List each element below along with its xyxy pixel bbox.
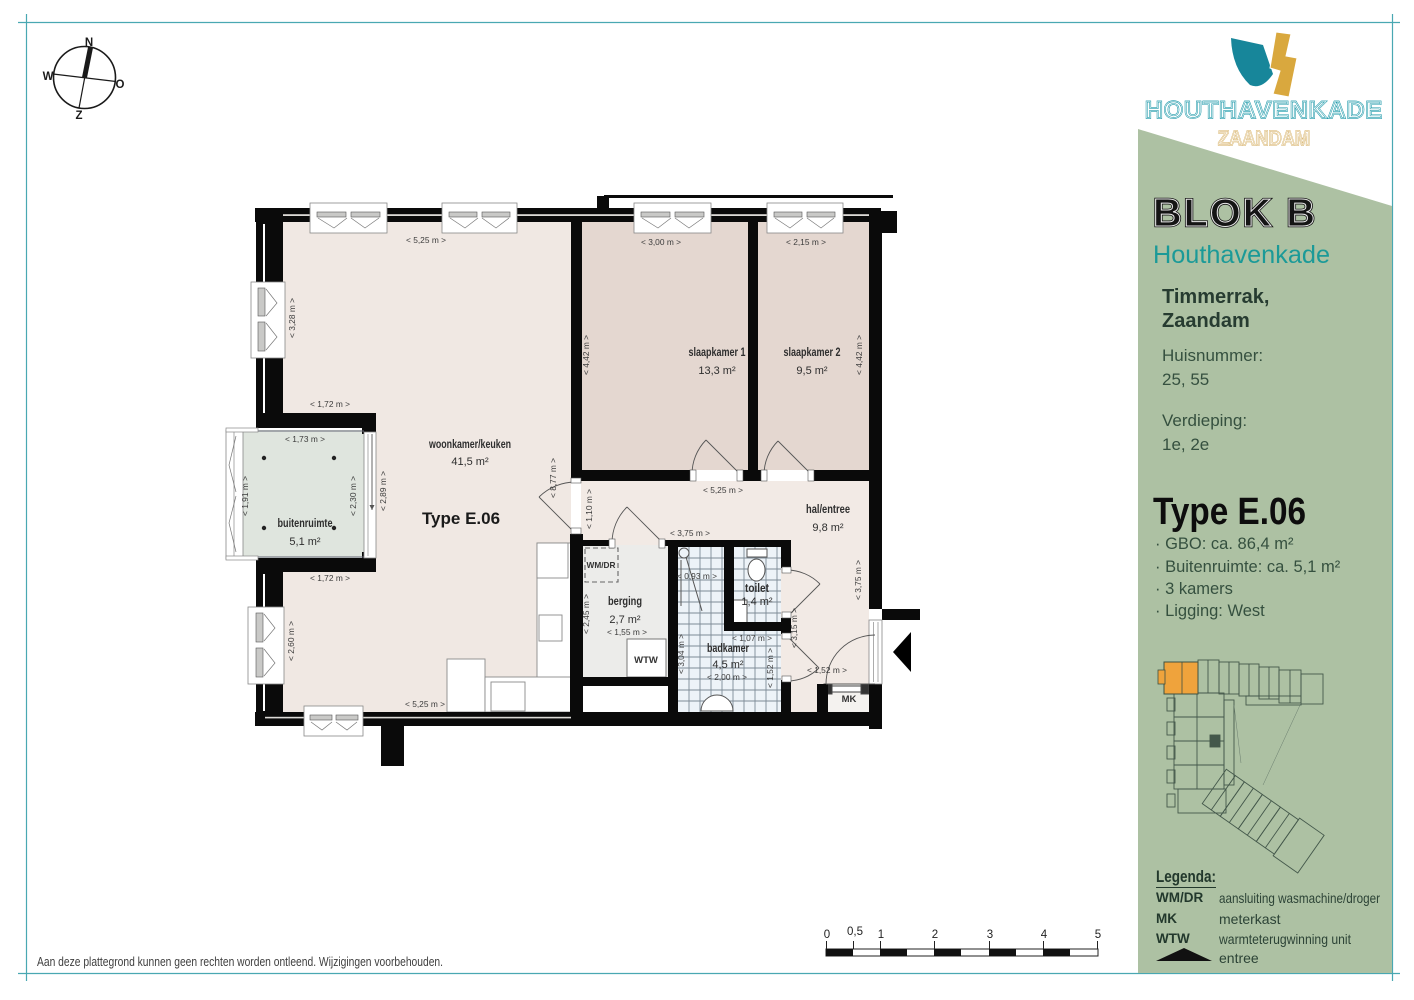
svg-text:25, 55: 25, 55 xyxy=(1162,370,1209,389)
svg-text:< 2,45 m >: < 2,45 m > xyxy=(581,594,591,634)
svg-text:WTW: WTW xyxy=(634,655,658,666)
svg-text:Type E.06: Type E.06 xyxy=(1153,491,1306,533)
svg-text:9,5 m²: 9,5 m² xyxy=(796,365,828,377)
svg-text:· Buitenruimte: ca. 5,1 m²: · Buitenruimte: ca. 5,1 m² xyxy=(1155,558,1341,576)
svg-text:< 2,30 m >: < 2,30 m > xyxy=(348,476,358,516)
svg-text:Houthavenkade: Houthavenkade xyxy=(1153,241,1330,269)
svg-text:< 3,75 m >: < 3,75 m > xyxy=(670,528,710,538)
svg-text:· Ligging: West: · Ligging: West xyxy=(1155,602,1265,620)
svg-text:berging: berging xyxy=(608,596,642,608)
svg-text:3: 3 xyxy=(987,929,993,941)
svg-text:5: 5 xyxy=(1095,929,1101,941)
svg-text:9,8 m²: 9,8 m² xyxy=(812,522,844,534)
svg-text:< 1,72 m >: < 1,72 m > xyxy=(310,573,350,583)
svg-text:0,5: 0,5 xyxy=(847,926,863,938)
svg-text:< 3,00 m >: < 3,00 m > xyxy=(641,237,681,247)
svg-text:· 3 kamers: · 3 kamers xyxy=(1155,580,1233,598)
svg-text:entree: entree xyxy=(1219,950,1259,966)
svg-text:Aan deze plattegrond kunnen ge: Aan deze plattegrond kunnen geen rechten… xyxy=(37,955,443,969)
svg-text:Type E.06: Type E.06 xyxy=(422,509,500,528)
svg-text:4,5 m²: 4,5 m² xyxy=(712,659,744,671)
svg-text:41,5 m²: 41,5 m² xyxy=(451,456,489,468)
svg-text:< 0,93 m >: < 0,93 m > xyxy=(677,571,717,581)
svg-text:O: O xyxy=(116,79,125,91)
svg-text:0: 0 xyxy=(824,929,830,941)
svg-text:ZAANDAM: ZAANDAM xyxy=(1218,128,1310,150)
svg-text:< 2,00 m >: < 2,00 m > xyxy=(707,672,747,682)
svg-text:< 8,77 m >: < 8,77 m > xyxy=(548,458,558,498)
svg-text:BLOK B: BLOK B xyxy=(1153,192,1317,235)
svg-text:< 1,55 m >: < 1,55 m > xyxy=(607,627,647,637)
svg-text:< 5,25 m >: < 5,25 m > xyxy=(405,699,445,709)
svg-text:4: 4 xyxy=(1041,929,1048,941)
svg-text:warmteterugwinning unit: warmteterugwinning unit xyxy=(1218,931,1351,947)
svg-text:< 2,15 m >: < 2,15 m > xyxy=(786,237,826,247)
svg-text:< 4,42 m >: < 4,42 m > xyxy=(854,335,864,375)
svg-text:2,7 m²: 2,7 m² xyxy=(609,614,641,626)
svg-text:WTW: WTW xyxy=(1156,931,1190,946)
svg-text:< 2,60 m >: < 2,60 m > xyxy=(286,621,296,661)
svg-text:< 1,72 m >: < 1,72 m > xyxy=(310,399,350,409)
svg-text:< 1,10 m >: < 1,10 m > xyxy=(584,489,594,529)
svg-text:slaapkamer 1: slaapkamer 1 xyxy=(689,347,746,359)
svg-text:1: 1 xyxy=(878,929,884,941)
svg-text:MK: MK xyxy=(842,694,857,705)
svg-text:Zaandam: Zaandam xyxy=(1162,310,1250,332)
svg-text:Huisnummer:: Huisnummer: xyxy=(1162,346,1263,365)
svg-text:W: W xyxy=(43,71,54,83)
svg-text:< 3,75 m >: < 3,75 m > xyxy=(853,560,863,600)
svg-text:HOUTHAVENKADE: HOUTHAVENKADE xyxy=(1145,97,1383,124)
svg-text:< 3,28 m >: < 3,28 m > xyxy=(287,298,297,338)
svg-text:WM/DR: WM/DR xyxy=(1156,890,1203,905)
svg-text:Z: Z xyxy=(75,110,82,122)
svg-text:hal/entree: hal/entree xyxy=(806,504,850,516)
svg-text:toilet: toilet xyxy=(745,583,769,595)
svg-text:< 2,89 m >: < 2,89 m > xyxy=(378,471,388,511)
svg-text:< 1,52 m >: < 1,52 m > xyxy=(765,648,775,688)
svg-text:1,4 m²: 1,4 m² xyxy=(741,596,773,608)
svg-text:meterkast: meterkast xyxy=(1219,911,1281,927)
svg-text:badkamer: badkamer xyxy=(707,643,749,655)
svg-text:buitenruimte: buitenruimte xyxy=(278,518,333,530)
svg-text:< 1,73 m >: < 1,73 m > xyxy=(285,434,325,444)
svg-text:WM/DR: WM/DR xyxy=(587,560,616,570)
svg-text:Timmerrak,: Timmerrak, xyxy=(1162,286,1269,308)
svg-text:< 5,25 m >: < 5,25 m > xyxy=(406,235,446,245)
svg-text:< 3,15 m >: < 3,15 m > xyxy=(789,608,799,648)
svg-text:woonkamer/keuken: woonkamer/keuken xyxy=(428,439,511,451)
svg-text:13,3 m²: 13,3 m² xyxy=(698,365,736,377)
svg-text:< 1,52 m >: < 1,52 m > xyxy=(807,665,847,675)
svg-text:< 4,42 m >: < 4,42 m > xyxy=(581,335,591,375)
svg-text:1e, 2e: 1e, 2e xyxy=(1162,435,1209,454)
svg-text:MK: MK xyxy=(1156,911,1177,926)
svg-text:slaapkamer 2: slaapkamer 2 xyxy=(784,347,841,359)
svg-text:Verdieping:: Verdieping: xyxy=(1162,411,1247,430)
svg-text:5,1 m²: 5,1 m² xyxy=(289,536,321,548)
svg-text:aansluiting wasmachine/droger: aansluiting wasmachine/droger xyxy=(1219,890,1380,906)
svg-text:N: N xyxy=(85,37,93,49)
svg-text:Legenda:: Legenda: xyxy=(1156,867,1216,886)
svg-text:< 1,07 m >: < 1,07 m > xyxy=(732,633,772,643)
svg-text:· GBO: ca. 86,4 m²: · GBO: ca. 86,4 m² xyxy=(1155,535,1294,553)
svg-text:< 5,25 m >: < 5,25 m > xyxy=(703,485,743,495)
svg-text:2: 2 xyxy=(932,929,938,941)
svg-text:< 3,04 m >: < 3,04 m > xyxy=(676,634,686,674)
svg-text:< 1,91 m >: < 1,91 m > xyxy=(240,476,250,516)
